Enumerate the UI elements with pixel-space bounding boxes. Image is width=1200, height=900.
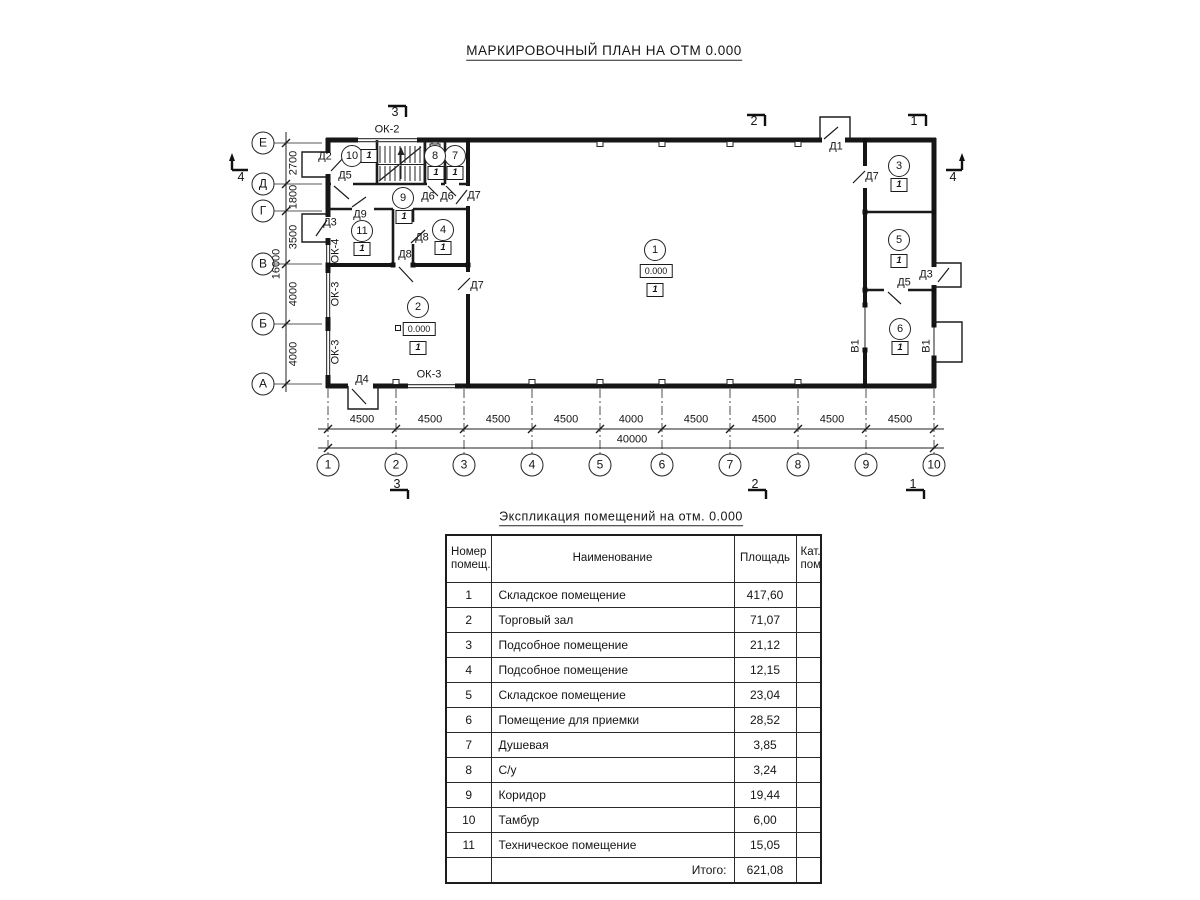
room-area-cell: 6,00 (734, 808, 796, 833)
room-area-cell: 15,05 (734, 833, 796, 858)
room-2-elevation-mark (395, 325, 401, 331)
room-10-marker: 1 (361, 149, 378, 163)
dim-col-2: 4500 (418, 415, 442, 426)
room-name-cell: Тамбур (491, 808, 734, 833)
window-label-ok2: ОК-2 (375, 125, 400, 136)
stairs (378, 140, 424, 184)
section-bottom-1: 1 (910, 478, 917, 491)
room-category-cell (796, 783, 821, 808)
table-title: Экспликация помещений на отм. 0.000 (499, 510, 743, 526)
room-name-cell: Коридор (491, 783, 734, 808)
room-number-cell: 9 (446, 783, 491, 808)
room-4-marker: 1 (435, 241, 452, 255)
room-9-number: 9 (392, 187, 414, 209)
room-category-cell (796, 683, 821, 708)
dim-col-6: 4500 (684, 415, 708, 426)
section-left-4: 4 (238, 171, 245, 184)
dimension-ticks (282, 139, 938, 452)
col-header-number: Номер помещ. (446, 535, 491, 583)
room-2-marker: 1 (410, 341, 427, 355)
room-3-marker: 1 (891, 178, 908, 192)
door-label-d5-left: Д5 (338, 171, 352, 182)
room-name-cell: Торговый зал (491, 608, 734, 633)
dim-col-4: 4500 (554, 415, 578, 426)
room-category-cell (796, 733, 821, 758)
door-label-d5-right: Д5 (897, 278, 911, 289)
gate-label-v1-right: В1 (922, 339, 933, 352)
window-label-ok4: ОК-4 (331, 239, 342, 264)
table-row: 1 Складское помещение 417,60 (446, 583, 821, 608)
table-row: 11 Техническое помещение 15,05 (446, 833, 821, 858)
door-label-d7-corridor: Д7 (467, 191, 481, 202)
door-label-d8-corridor: Д8 (398, 250, 412, 261)
room-1-marker: 1 (647, 283, 664, 297)
axis-col-4: 4 (521, 454, 544, 477)
door-label-d1: Д1 (829, 142, 843, 153)
col-header-area: Площадь (734, 535, 796, 583)
room-name-cell: Помещение для приемки (491, 708, 734, 733)
room-area-cell: 3,24 (734, 758, 796, 783)
window-label-ok3-b: ОК-3 (331, 340, 342, 365)
room-7-marker: 1 (447, 166, 464, 180)
room-area-cell: 12,15 (734, 658, 796, 683)
room-5-number: 5 (888, 229, 910, 251)
dim-row-4: 4000 (289, 282, 300, 306)
dim-row-1: 2700 (289, 151, 300, 175)
dimension-lines (274, 132, 944, 448)
col-header-category: Кат. пом. (796, 535, 821, 583)
axis-col-8: 8 (787, 454, 810, 477)
dim-col-5: 4000 (619, 415, 643, 426)
room-category-cell (796, 758, 821, 783)
room-name-cell: Подсобное помещение (491, 658, 734, 683)
total-category-cell (796, 858, 821, 884)
dim-row-3: 3500 (289, 225, 300, 249)
door-label-d3-left: Д3 (323, 218, 337, 229)
room-area-cell: 28,52 (734, 708, 796, 733)
door-label-d7-room2: Д7 (470, 281, 484, 292)
room-area-cell: 21,12 (734, 633, 796, 658)
window-label-ok3-c: ОК-3 (417, 370, 442, 381)
room-number-cell: 8 (446, 758, 491, 783)
table-row: 5 Складское помещение 23,04 (446, 683, 821, 708)
dim-col-9: 4500 (888, 415, 912, 426)
window-label-ok3-a: ОК-3 (331, 282, 342, 307)
plan-title: МАРКИРОВОЧНЫЙ ПЛАН НА ОТМ 0.000 (466, 44, 742, 61)
room-area-cell: 19,44 (734, 783, 796, 808)
room-name-cell: С/у (491, 758, 734, 783)
axis-col-1: 1 (317, 454, 340, 477)
table-row: 10 Тамбур 6,00 (446, 808, 821, 833)
room-6-marker: 1 (892, 341, 909, 355)
dim-row-2: 1800 (289, 185, 300, 209)
axis-row-G: Г (252, 200, 275, 223)
table-row: 9 Коридор 19,44 (446, 783, 821, 808)
axis-row-A: А (252, 373, 275, 396)
axis-col-9: 9 (855, 454, 878, 477)
total-label-cell: Итого: (491, 858, 734, 884)
room-name-cell: Складское помещение (491, 583, 734, 608)
room-category-cell (796, 658, 821, 683)
axis-col-6: 6 (651, 454, 674, 477)
room-4-number: 4 (432, 219, 454, 241)
room-category-cell (796, 708, 821, 733)
room-number-cell: 4 (446, 658, 491, 683)
room-6-number: 6 (889, 318, 911, 340)
room-8-marker: 1 (428, 166, 445, 180)
room-area-cell: 71,07 (734, 608, 796, 633)
room-number-cell: 5 (446, 683, 491, 708)
dim-col-1: 4500 (350, 415, 374, 426)
door-label-d2: Д2 (318, 152, 332, 163)
room-9-marker: 1 (396, 210, 413, 224)
door-label-d4: Д4 (355, 375, 369, 386)
room-area-cell: 3,85 (734, 733, 796, 758)
door-label-d6-b: Д6 (440, 192, 454, 203)
section-top-1: 1 (911, 115, 918, 128)
axis-col-2: 2 (385, 454, 408, 477)
table-row: 8 С/у 3,24 (446, 758, 821, 783)
gate-label-v1-left: В1 (851, 339, 862, 352)
total-empty-cell (446, 858, 491, 884)
room-number-cell: 6 (446, 708, 491, 733)
axis-row-E: Е (252, 132, 275, 155)
section-top-2: 2 (751, 115, 758, 128)
room-number-cell: 3 (446, 633, 491, 658)
room-8-number: 8 (424, 145, 446, 167)
section-marks (232, 106, 962, 499)
room-7-number: 7 (444, 145, 466, 167)
door-label-d7-room3: Д7 (865, 172, 879, 183)
room-category-cell (796, 633, 821, 658)
room-1-elevation: 0.000 (640, 264, 673, 278)
room-5-marker: 1 (891, 254, 908, 268)
room-number-cell: 7 (446, 733, 491, 758)
axis-row-D: Д (252, 173, 275, 196)
table-row: 6 Помещение для приемки 28,52 (446, 708, 821, 733)
room-area-cell: 417,60 (734, 583, 796, 608)
section-bottom-3: 3 (394, 478, 401, 491)
section-right-4: 4 (950, 171, 957, 184)
axis-col-3: 3 (453, 454, 476, 477)
dim-col-3: 4500 (486, 415, 510, 426)
table-row: 4 Подсобное помещение 12,15 (446, 658, 821, 683)
door-label-d9: Д9 (353, 210, 367, 221)
total-area-cell: 621,08 (734, 858, 796, 884)
room-area-cell: 23,04 (734, 683, 796, 708)
door-label-d6-a: Д6 (421, 192, 435, 203)
dim-row-total: 16000 (272, 249, 283, 280)
room-name-cell: Душевая (491, 733, 734, 758)
room-number-cell: 2 (446, 608, 491, 633)
room-number-cell: 1 (446, 583, 491, 608)
room-category-cell (796, 808, 821, 833)
table-row: 7 Душевая 3,85 (446, 733, 821, 758)
dim-col-7: 4500 (752, 415, 776, 426)
room-11-number: 11 (351, 220, 373, 242)
door-label-d3-right: Д3 (919, 270, 933, 281)
room-2-elevation: 0.000 (403, 322, 436, 336)
room-11-marker: 1 (354, 242, 371, 256)
table-row: 3 Подсобное помещение 21,12 (446, 633, 821, 658)
col-header-name: Наименование (491, 535, 734, 583)
axis-col-5: 5 (589, 454, 612, 477)
drawing-sheet: МАРКИРОВОЧНЫЙ ПЛАН НА ОТМ 0.000 Эксплика… (0, 0, 1200, 900)
room-category-cell (796, 608, 821, 633)
section-arrowheads (229, 153, 965, 161)
dim-row-5: 4000 (289, 342, 300, 366)
dim-col-8: 4500 (820, 415, 844, 426)
walls-partition (328, 140, 934, 290)
dim-col-total: 40000 (617, 435, 648, 446)
door-label-d8-room4: Д8 (415, 233, 429, 244)
table-row: 2 Торговый зал 71,07 (446, 608, 821, 633)
section-bottom-2: 2 (752, 478, 759, 491)
room-name-cell: Техническое помещение (491, 833, 734, 858)
room-2-number: 2 (407, 296, 429, 318)
room-category-cell (796, 833, 821, 858)
axis-row-B: Б (252, 313, 275, 336)
room-3-number: 3 (888, 155, 910, 177)
room-number-cell: 10 (446, 808, 491, 833)
axis-col-7: 7 (719, 454, 742, 477)
room-category-cell (796, 583, 821, 608)
section-top-3: 3 (392, 106, 399, 119)
axis-col-10: 10 (923, 454, 946, 477)
table-total-row: Итого: 621,08 (446, 858, 821, 884)
room-name-cell: Подсобное помещение (491, 633, 734, 658)
room-name-cell: Складское помещение (491, 683, 734, 708)
room-explication-table: Номер помещ. Наименование Площадь Кат. п… (445, 534, 822, 884)
table-header-row: Номер помещ. Наименование Площадь Кат. п… (446, 535, 821, 583)
room-number-cell: 11 (446, 833, 491, 858)
room-1-number: 1 (644, 239, 666, 261)
